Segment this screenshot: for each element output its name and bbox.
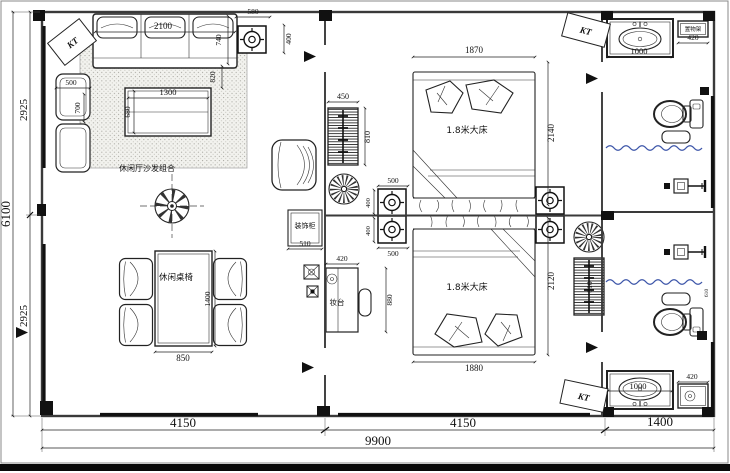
dim-side-sofa-depth: 700: [73, 102, 82, 114]
dim-bed1-length: 2140: [546, 124, 556, 143]
dining-label: 休闲桌椅: [159, 272, 194, 283]
dining-chair: [214, 259, 247, 300]
dim-height-lower: 2925: [18, 305, 30, 328]
dim-spk2-width: 500: [387, 249, 399, 258]
shelf1-label: 置物架: [685, 25, 702, 33]
shelf: [678, 384, 708, 408]
speaker-icon: [378, 216, 406, 243]
dim-deco-cabinet: 510: [299, 239, 311, 248]
dim-cab2-depth: 810: [585, 281, 594, 293]
dining-set: [120, 251, 247, 346]
speaker-icon: [378, 189, 406, 216]
bottom-edge-bar: [0, 464, 730, 471]
dim-spk2-depth: 400: [365, 226, 372, 236]
dim-dresser-length: 880: [385, 294, 394, 306]
dim-vanity2-width: 1000: [630, 381, 647, 391]
dim-speaker-width: 580: [247, 7, 259, 16]
dim-sofa-width: 2100: [154, 21, 173, 31]
dining-chair: [120, 259, 153, 300]
dim-cab1-depth: 810: [363, 131, 372, 143]
ceiling-speaker-icon: [238, 26, 266, 53]
dim-bed2-width: 1880: [465, 363, 484, 373]
dim-dining-width: 850: [176, 353, 190, 363]
dim-spk1-width: 500: [387, 176, 399, 185]
dim-total-width: 9900: [365, 433, 391, 448]
floor-plan-drawing: KT KT KT: [0, 0, 730, 473]
dim-speaker-depth: 400: [284, 33, 293, 45]
armchair: [272, 140, 316, 190]
dim-sofa-table-gap: 820: [208, 71, 217, 83]
dim-shelf1-width: 420: [687, 33, 699, 42]
dim-shelf2-width: 420: [686, 372, 698, 381]
bed2-label: 1.8米大床: [446, 281, 487, 293]
dim-vanity1-width: 1000: [631, 46, 648, 56]
dim-height-upper: 2925: [18, 99, 30, 122]
dining-chair: [120, 305, 153, 346]
dim-total-height: 6100: [0, 201, 13, 227]
dim-bed1-width: 1870: [465, 45, 484, 55]
dim-living-width: 4150: [170, 415, 196, 430]
speaker-icon: [536, 216, 564, 243]
dim-bed2-length: 2120: [546, 272, 556, 291]
dim-spk1-depth: 400: [365, 198, 372, 208]
dim-sofa-depth: 740: [214, 34, 223, 46]
dim-bedroom-width: 4150: [450, 415, 476, 430]
speaker-icon: [536, 187, 564, 214]
bed1-label: 1.8米大床: [446, 124, 487, 136]
floor-plan-page: KT KT KT: [0, 0, 730, 473]
louver-cabinet-top: [328, 108, 358, 165]
sofa-area-label: 休闲厅沙发组合: [119, 163, 175, 173]
dresser-label: 妆台: [330, 297, 345, 307]
dim-side-sofa-width: 500: [65, 78, 77, 87]
dim-cab1-width: 450: [337, 92, 349, 101]
dim-dining-length: 1400: [203, 291, 212, 306]
dim-coffee-table-width: 1300: [160, 87, 177, 97]
dim-dresser-width: 420: [336, 254, 348, 263]
dim-shower2: 610: [704, 289, 710, 298]
dining-chair: [214, 305, 247, 346]
dim-coffee-table-depth: 680: [123, 106, 132, 118]
side-sofa-2: [56, 124, 90, 172]
dim-bath-width: 1400: [647, 414, 673, 429]
deco-cabinet-label: 装饰柜: [295, 221, 316, 230]
